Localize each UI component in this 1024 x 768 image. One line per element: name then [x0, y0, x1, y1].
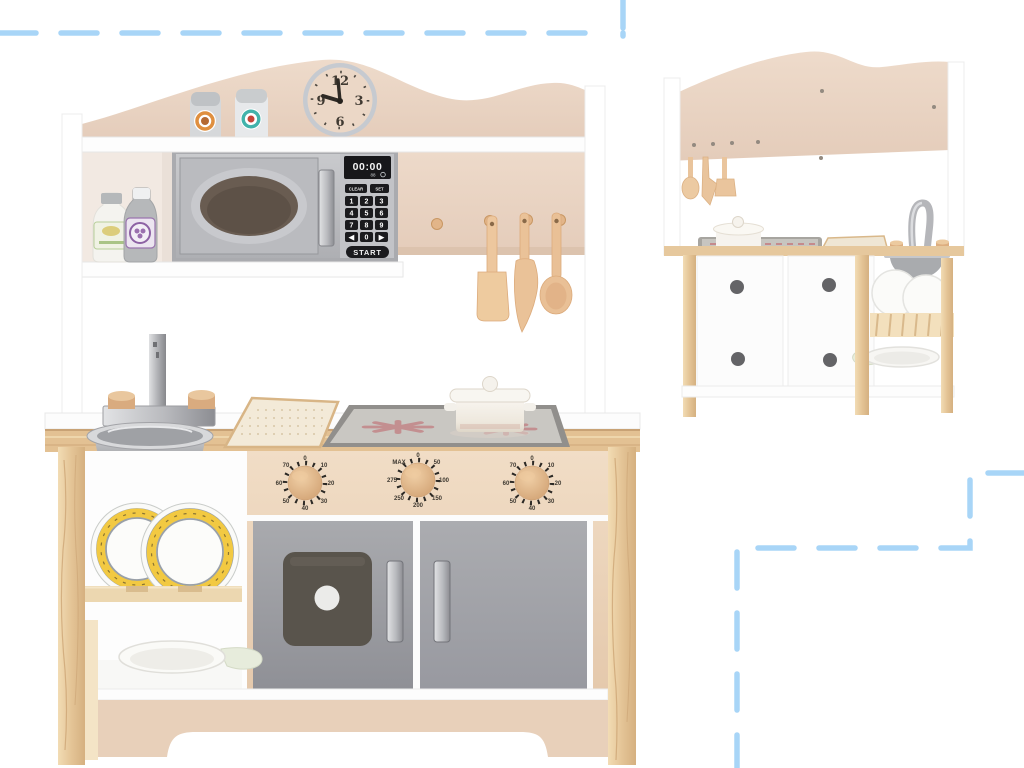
knob-label-center-275: 275: [387, 478, 398, 484]
microwave-key-1: 1: [350, 199, 354, 206]
knob-label-left-20: 20: [328, 481, 335, 487]
oven-window-dot: [315, 586, 340, 611]
knob-label-center-250: 250: [394, 496, 405, 502]
tap-knob-left: [108, 391, 135, 409]
knob-label-left-60: 60: [276, 481, 283, 487]
wall-clock: 12 3 6 9: [303, 63, 377, 137]
microwave-clear-label: CLEAR: [349, 186, 363, 191]
microwave-handle: [319, 170, 334, 246]
microwave-display-sub: 88: [370, 173, 376, 178]
leg-front-left: [58, 447, 85, 765]
microwave-key-8: 8: [365, 223, 369, 230]
knob-label-center-200: 200: [413, 503, 424, 509]
rear-faucet: [912, 203, 930, 251]
microwave-key-0: 0: [365, 235, 369, 242]
microwave-key-9: 9: [380, 223, 384, 230]
rear-hanging-spatula: [715, 157, 736, 196]
knob-label-right-40: 40: [529, 506, 536, 512]
microwave-key-7: 7: [350, 223, 354, 230]
decor-dash-bottom-right: [737, 473, 1024, 768]
faucet-pipe: [149, 334, 166, 408]
knob-label-left-50: 50: [283, 499, 290, 505]
leg-front-right: [608, 447, 636, 765]
knob-label-right-30: 30: [548, 499, 555, 505]
microwave-key-6: 6: [380, 211, 384, 218]
stovetop: [322, 405, 570, 447]
knob-label-right-50: 50: [510, 499, 517, 505]
clock-numeral-3: 3: [354, 94, 363, 109]
knob-label-center-150: 150: [432, 496, 443, 502]
toy-microwave: 00:00 88 CLEAR SET 1 2 3 4 5 6: [172, 150, 398, 262]
microwave-key-5: 5: [365, 211, 369, 218]
rear-hanging-spoon: [682, 157, 699, 199]
rear-bottom-board: [682, 386, 954, 397]
rear-post-right: [948, 62, 964, 255]
microwave-key-3: 3: [380, 199, 384, 206]
kick-panel: [82, 700, 608, 757]
door-divider: [413, 521, 420, 689]
pot-lid-knob: [483, 377, 498, 392]
frying-pan-handle: [221, 648, 262, 670]
burner-left: [365, 421, 431, 432]
cutting-board: [225, 398, 338, 447]
microwave-start-label: START: [353, 248, 381, 257]
door-top-trim: [247, 515, 608, 521]
cabinet-bottom-board: [82, 689, 608, 700]
toy-kitchen-illustration: 12 3 6 9: [0, 0, 1024, 768]
microwave-window-inner: [207, 186, 291, 234]
compartment-shadow: [162, 152, 172, 264]
tap-knob-right: [188, 390, 215, 409]
door-right-trim: [587, 521, 593, 689]
knob-label-center-50: 50: [434, 460, 441, 466]
knob-label-left-10: 10: [321, 463, 328, 469]
hutch-shelf-mid: [62, 262, 403, 277]
spice-shaker-right: [235, 89, 268, 139]
microwave-display-time: 00:00: [353, 161, 383, 173]
cabinet-door-right: [420, 521, 587, 689]
oven-door: [253, 521, 413, 689]
plate-rack: [85, 586, 242, 602]
rear-panel-left: [697, 256, 783, 388]
microwave-control-panel: 00:00 88 CLEAR SET 1 2 3 4 5 6: [340, 154, 394, 258]
microwave-key-4: 4: [350, 211, 354, 218]
rear-hanging-knife: [702, 157, 717, 205]
hutch-shelf-top: [62, 137, 605, 152]
product-photo-canvas: 12 3 6 9: [0, 0, 1024, 768]
knob-label-left-30: 30: [321, 499, 328, 505]
clock-numeral-6: 6: [335, 115, 344, 130]
microwave-set-label: SET: [375, 186, 384, 191]
rear-post-left: [664, 78, 680, 255]
kitchen-front-view: 12 3 6 9: [45, 60, 640, 765]
spice-shaker-left: [190, 92, 221, 139]
knob-label-right-10: 10: [548, 463, 555, 469]
microwave-key-2: 2: [365, 199, 369, 206]
microwave-key-right: ▶: [378, 235, 385, 242]
rear-leg-right-front: [855, 255, 869, 415]
cabinet-door-handle: [434, 561, 450, 642]
microwave-key-left: ◀: [348, 235, 355, 242]
knob-label-left-70: 70: [283, 463, 290, 469]
knob-label-left-40: 40: [302, 506, 309, 512]
cooking-pot: [444, 377, 536, 439]
oven-door-handle: [387, 561, 403, 642]
kitchen-rear-view: [664, 52, 964, 417]
rear-counter-edge: [664, 246, 964, 256]
rear-leg-right-back: [941, 258, 953, 413]
rear-back-panel: [666, 52, 950, 161]
utensil-peg-1: [432, 219, 443, 230]
leg-back-left: [85, 620, 98, 760]
knob-label-center-max: MAX: [392, 460, 405, 466]
knob-label-right-60: 60: [503, 481, 510, 487]
hutch-post-left: [62, 114, 82, 415]
knob-label-right-70: 70: [510, 463, 517, 469]
knob-label-right-20: 20: [555, 481, 562, 487]
hutch-post-right: [585, 86, 605, 415]
knob-label-center-100: 100: [439, 478, 450, 484]
clock-center-pin: [337, 98, 343, 104]
clock-minute-hand: [338, 80, 340, 101]
